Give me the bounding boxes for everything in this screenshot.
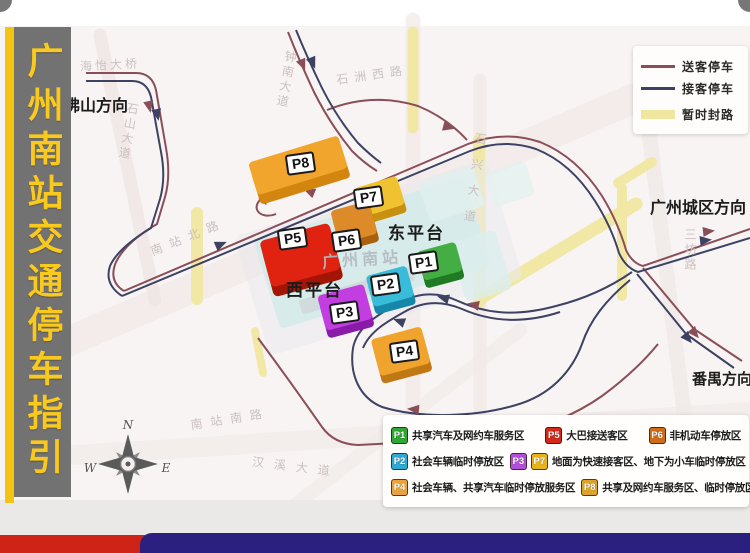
map-marker-p8: P8: [285, 151, 317, 176]
title-sidebar: 广州南站交通停车指引: [5, 27, 71, 503]
p3-p7-legend-text: 地面为快速接客区、地下为小车临时停放区: [552, 454, 746, 469]
west-platform-label: 西平台: [286, 276, 343, 301]
legend-row-pickup: 接客停车: [641, 77, 740, 99]
p3-legend-marker: P3: [510, 453, 527, 470]
map-marker-p5: P5: [277, 226, 309, 251]
map-marker-p3: P3: [329, 300, 361, 325]
compass-w: W: [84, 461, 98, 475]
pickup-label: 接客停车: [682, 80, 734, 97]
street-name: 三坊路: [682, 228, 699, 273]
parking-legend-row-3: P4 社会车辆、共享汽车临时停放服务区 P8 共享及网约车服务区、临时停放区: [391, 474, 741, 500]
legend-item-p5: P5 大巴接送客区: [545, 427, 627, 444]
parking-legend: P1 共享汽车及网约车服务区 P5 大巴接送客区 P6 非机动车停放区 P2 社…: [383, 415, 749, 507]
closed-road-label: 暂时封路: [682, 106, 734, 123]
east-platform-label: 东平台: [388, 219, 445, 244]
p1-legend-text: 共享汽车及网约车服务区: [412, 428, 524, 443]
closed-road-swatch: [641, 110, 675, 119]
legend-row-closed: 暂时封路: [641, 103, 740, 125]
bottom-red-bar: [0, 535, 160, 553]
p2-legend-marker: P2: [391, 453, 408, 470]
compass-rose: N E S W: [84, 418, 171, 513]
legend-item-p2: P2 社会车辆临时停放区: [391, 453, 504, 470]
legend-item-p4: P4 社会车辆、共享汽车临时停放服务区: [391, 479, 575, 496]
p4-legend-text: 社会车辆、共享汽车临时停放服务区: [412, 480, 575, 495]
p1-legend-marker: P1: [391, 427, 408, 444]
p8-legend-marker: P8: [581, 479, 598, 496]
p6-legend-marker: P6: [649, 427, 666, 444]
map-marker-p7: P7: [353, 185, 385, 210]
p6-legend-text: 非机动车停放区: [670, 428, 741, 443]
line-legend: 送客停车 接客停车 暂时封路: [633, 46, 748, 134]
parking-legend-row-2: P2 社会车辆临时停放区 P3 P7 地面为快速接客区、地下为小车临时停放区: [391, 448, 741, 474]
legend-item-p8: P8 共享及网约车服务区、临时停放区: [581, 479, 750, 496]
legend-row-dropoff: 送客停车: [641, 55, 740, 77]
dropoff-label: 送客停车: [682, 58, 734, 75]
p2-legend-text: 社会车辆临时停放区: [412, 454, 504, 469]
map-marker-p4: P4: [389, 339, 421, 364]
compass-e: E: [161, 461, 171, 475]
direction-panyu: 番禺方向: [692, 368, 750, 389]
pickup-line-swatch: [641, 87, 675, 90]
p5-legend-marker: P5: [545, 427, 562, 444]
direction-foshan: 佛山方向: [64, 92, 128, 116]
map-marker-p6: P6: [331, 228, 363, 253]
parking-legend-row-1: P1 共享汽车及网约车服务区 P5 大巴接送客区 P6 非机动车停放区: [391, 422, 741, 448]
compass-n: N: [122, 418, 134, 432]
legend-item-p1: P1 共享汽车及网约车服务区: [391, 427, 524, 444]
street-name: 海怡大桥: [80, 54, 141, 74]
map-marker-p1: P1: [408, 250, 440, 275]
p7-legend-marker: P7: [531, 453, 548, 470]
sidebar-gray-panel: 广州南站交通停车指引: [14, 27, 71, 497]
page: N E S W 海怡大桥 石山大道 钟南大道 石洲西路 南站北路 三坊路 石兴大…: [0, 0, 750, 553]
direction-guangzhou-city: 广州城区方向: [650, 194, 746, 218]
p8-legend-text: 共享及网约车服务区、临时停放区: [602, 480, 750, 495]
sidebar-yellow-stripe: [5, 27, 14, 503]
p5-legend-text: 大巴接送客区: [566, 428, 627, 443]
page-title: 广州南站交通停车指引: [25, 42, 61, 482]
dropoff-line-swatch: [641, 65, 675, 68]
p4-legend-marker: P4: [391, 479, 408, 496]
map-marker-p2: P2: [370, 272, 402, 297]
bottom-navy-bar: [140, 533, 750, 553]
legend-item-p6: P6 非机动车停放区: [649, 427, 741, 444]
legend-item-p3-p7: P3 P7 地面为快速接客区、地下为小车临时停放区: [510, 453, 746, 470]
